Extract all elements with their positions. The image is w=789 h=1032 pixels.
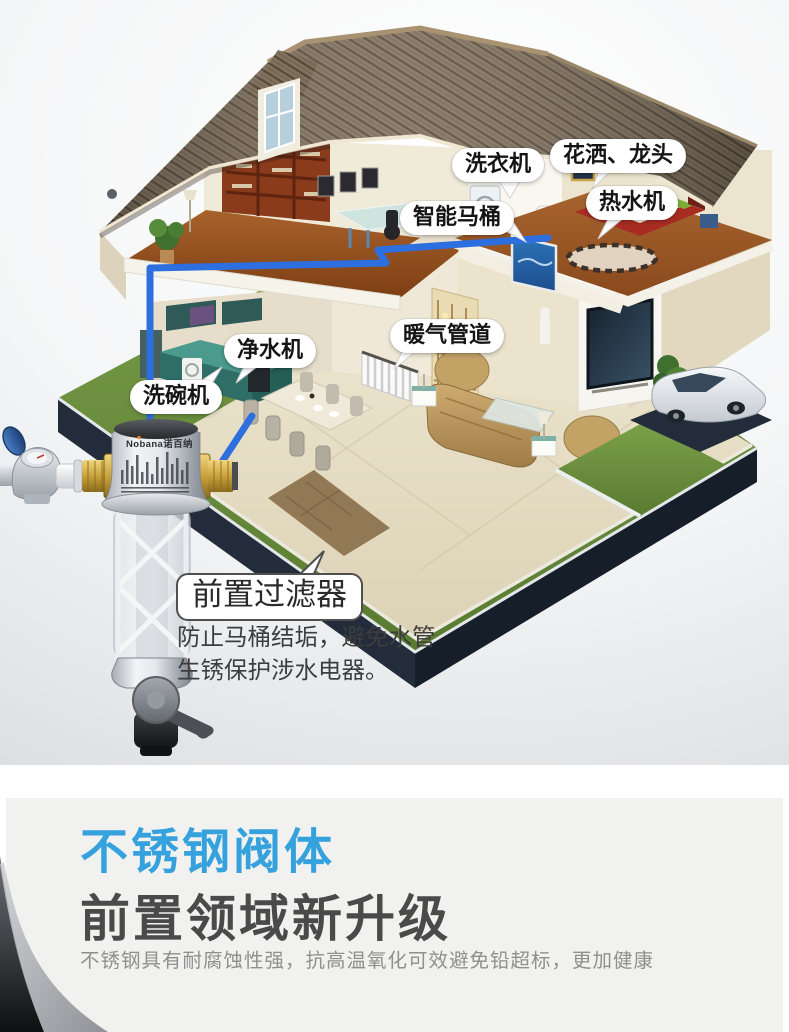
zebra-rug (568, 245, 656, 271)
callout-water-purifier: 净水机 (224, 334, 316, 368)
prefilter-description: 防止马桶结垢，避免水管生锈保护涉水电器。 (177, 621, 439, 688)
sculpture (540, 316, 550, 344)
hero-illustration-section: Nobana诺百纳 (0, 0, 789, 765)
callout-water-heater: 热水机 (586, 186, 678, 220)
callout-dishwasher: 洗碗机 (130, 380, 222, 414)
brand-text: Nobana诺百纳 (126, 438, 193, 450)
callout-shower-faucet: 花洒、龙头 (550, 139, 686, 173)
security-camera (107, 189, 117, 199)
feature-section: 不锈钢阀体 前置领域新升级 不锈钢具有耐腐蚀性强，抗高温氧化可效避免铅超标，更加… (6, 798, 783, 1032)
callout-washing-machine: 洗衣机 (452, 148, 544, 182)
water-meter (0, 423, 61, 504)
feature-body-text: 不锈钢具有耐腐蚀性强，抗高温氧化可效避免铅超标，更加健康 (80, 944, 654, 973)
plant-pot (160, 250, 174, 264)
filter-head: Nobana诺百纳 (104, 419, 208, 502)
nightstand (700, 214, 718, 228)
callout-heating-pipe: 暖气管道 (390, 319, 504, 353)
callout-smart-toilet: 智能马桶 (400, 201, 514, 235)
callout-prefilter: 前置过滤器 (176, 573, 363, 621)
heading-accent: 不锈钢阀体 (80, 812, 335, 882)
car (652, 367, 766, 422)
heading-main: 前置领域新升级 (80, 879, 451, 951)
